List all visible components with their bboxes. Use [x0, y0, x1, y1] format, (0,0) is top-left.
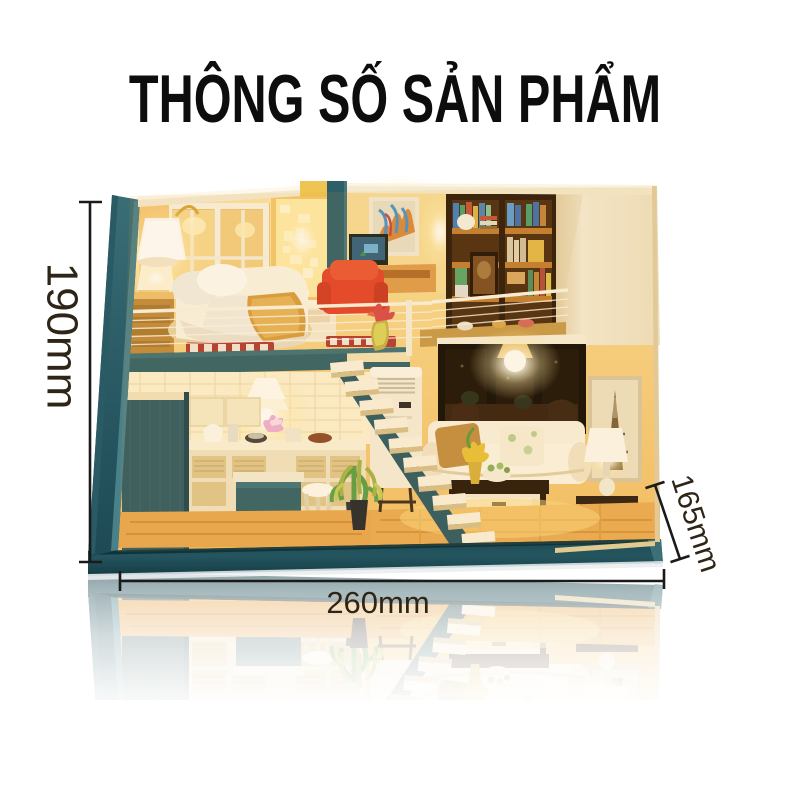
svg-text:190mm: 190mm	[37, 263, 86, 410]
svg-text:260mm: 260mm	[326, 585, 429, 620]
